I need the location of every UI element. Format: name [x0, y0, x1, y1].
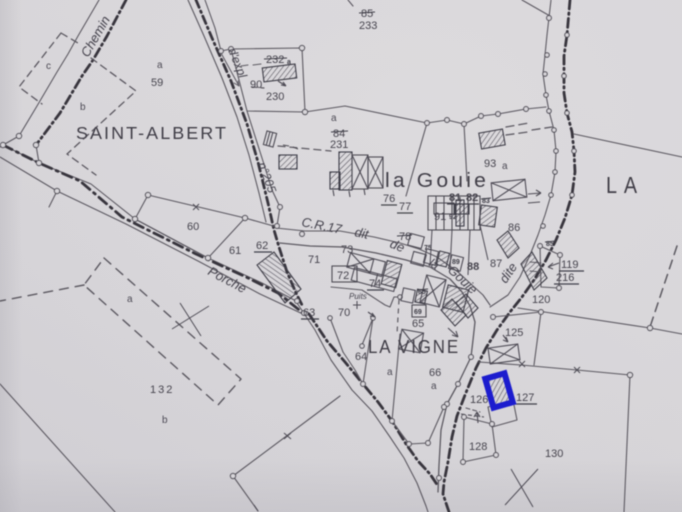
svg-text:87: 87 [490, 258, 502, 270]
svg-text:LA VIGNE: LA VIGNE [368, 337, 460, 357]
svg-text:64: 64 [355, 351, 367, 363]
svg-text:233: 233 [359, 20, 377, 32]
svg-text:a: a [387, 367, 393, 378]
svg-text:93: 93 [484, 158, 496, 170]
svg-text:230: 230 [266, 91, 284, 103]
svg-text:60: 60 [187, 221, 199, 233]
svg-text:a: a [431, 381, 437, 392]
svg-text:216: 216 [556, 272, 574, 284]
svg-text:86: 86 [508, 222, 520, 234]
svg-text:76: 76 [383, 193, 395, 205]
svg-text:128: 128 [469, 441, 487, 453]
svg-text:63: 63 [303, 307, 315, 319]
svg-text:82: 82 [466, 192, 478, 204]
svg-text:b: b [162, 415, 168, 426]
svg-text:91: 91 [434, 211, 446, 223]
svg-text:78: 78 [399, 231, 411, 243]
svg-text:70: 70 [338, 307, 350, 319]
svg-text:88: 88 [467, 261, 479, 273]
svg-text:a: a [331, 113, 337, 124]
svg-text:132: 132 [150, 384, 174, 396]
svg-text:72: 72 [337, 270, 349, 282]
svg-text:a: a [157, 60, 163, 71]
svg-text:b: b [80, 102, 86, 113]
svg-text:92: 92 [449, 214, 457, 221]
svg-text:74: 74 [369, 278, 381, 290]
svg-text:a: a [127, 294, 133, 305]
svg-text:120: 120 [532, 294, 550, 306]
svg-text:119: 119 [561, 259, 579, 271]
svg-text:90: 90 [250, 79, 262, 91]
svg-text:130: 130 [545, 448, 563, 460]
svg-text:75: 75 [424, 245, 432, 252]
svg-text:62: 62 [256, 240, 268, 252]
svg-text:c: c [46, 61, 51, 72]
svg-text:LA: LA [606, 172, 644, 198]
svg-text:SAINT-ALBERT: SAINT-ALBERT [76, 123, 228, 143]
svg-text:77: 77 [399, 201, 411, 213]
svg-text:85: 85 [361, 8, 373, 20]
svg-text:61: 61 [229, 245, 241, 257]
svg-text:65: 65 [412, 318, 424, 330]
svg-text:232: 232 [266, 54, 284, 66]
svg-text:127: 127 [516, 392, 534, 404]
svg-text:a: a [287, 59, 291, 66]
svg-text:la Gouie: la Gouie [385, 170, 489, 192]
svg-text:89: 89 [452, 259, 460, 266]
svg-text:71: 71 [308, 254, 320, 266]
svg-text:125: 125 [505, 327, 523, 339]
svg-text:81: 81 [449, 192, 461, 204]
svg-text:126: 126 [470, 394, 488, 406]
svg-text:a: a [502, 161, 508, 172]
svg-text:73: 73 [341, 244, 353, 256]
svg-text:66: 66 [429, 367, 441, 379]
svg-text:231: 231 [330, 139, 348, 151]
svg-text:69: 69 [414, 309, 422, 316]
svg-text:Puits: Puits [349, 292, 367, 301]
svg-text:59: 59 [151, 77, 163, 89]
